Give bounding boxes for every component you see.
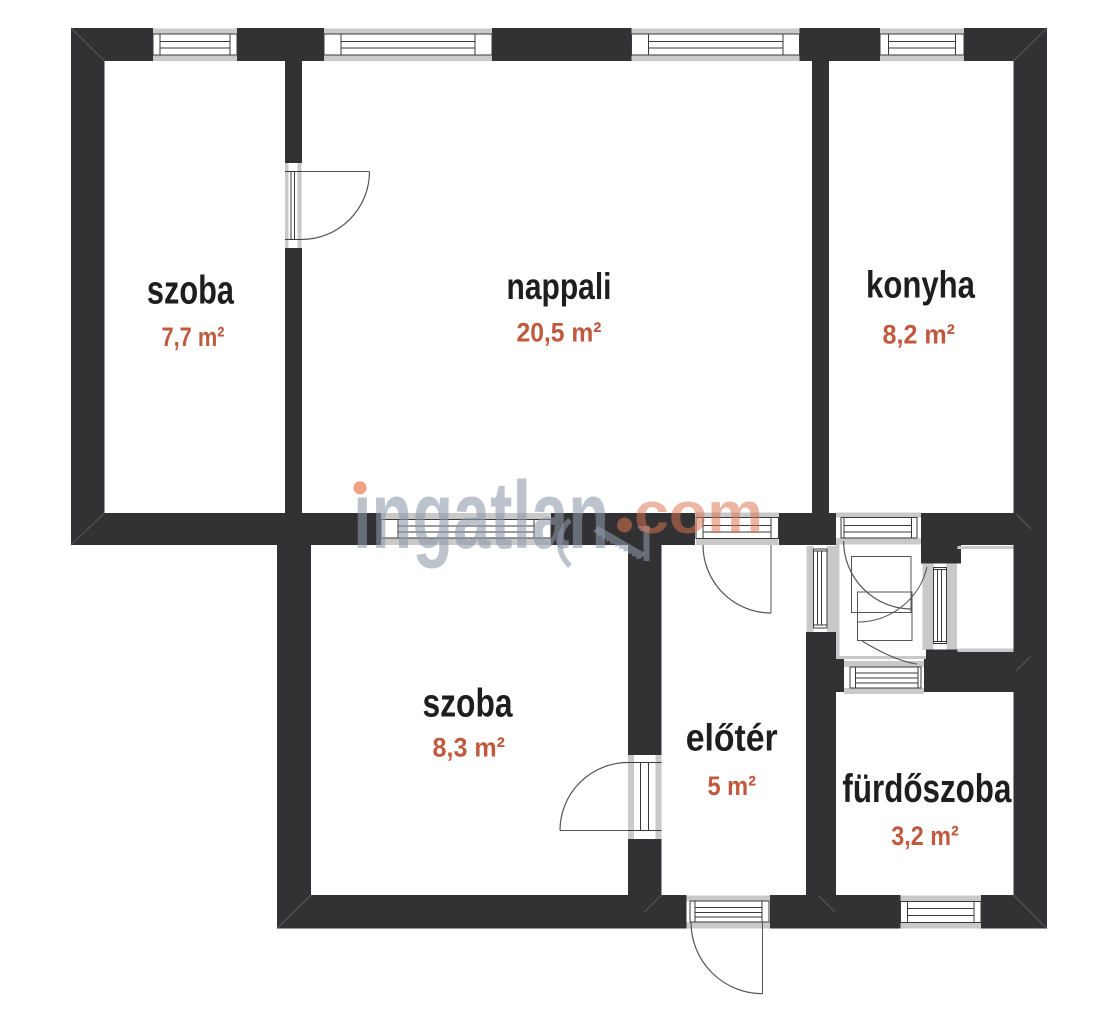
svg-text:5 m²: 5 m²	[707, 771, 756, 801]
svg-text:ıngatlan: ıngatlan	[353, 462, 609, 569]
svg-text:nappali: nappali	[507, 266, 612, 307]
svg-text:szoba: szoba	[147, 269, 235, 313]
svg-text:konyha: konyha	[866, 265, 976, 307]
svg-text:7,7 m²: 7,7 m²	[162, 322, 225, 352]
svg-text:fürdőszoba: fürdőszoba	[842, 767, 1012, 811]
svg-text:3,2 m²: 3,2 m²	[891, 821, 959, 851]
svg-text:20,5 m²: 20,5 m²	[517, 318, 602, 348]
svg-text:előtér: előtér	[686, 718, 778, 760]
svg-text:8,2 m²: 8,2 m²	[883, 320, 956, 350]
svg-text:8,3 m²: 8,3 m²	[433, 733, 506, 763]
svg-text:com: com	[634, 481, 763, 546]
svg-text:szoba: szoba	[423, 682, 514, 726]
